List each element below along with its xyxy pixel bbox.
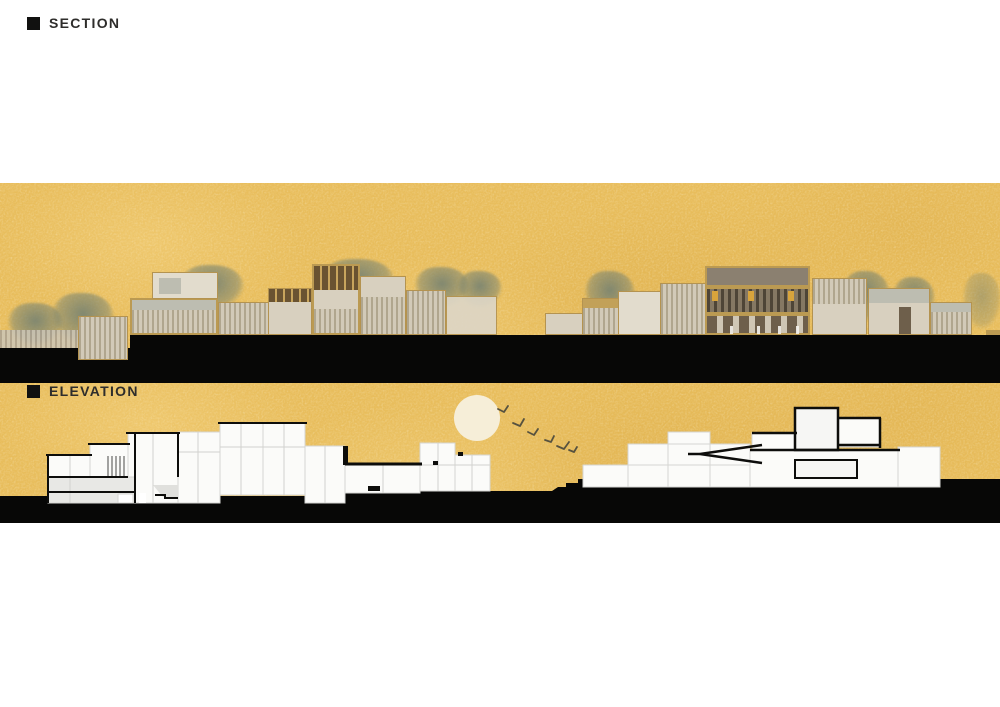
slat-band <box>361 297 405 334</box>
elevation-label-text: ELEVATION <box>49 383 139 399</box>
elevation-block <box>812 278 867 335</box>
door-opening <box>899 307 911 334</box>
section-building-right <box>583 408 940 487</box>
person-silhouette <box>796 326 799 334</box>
birds-flock <box>498 406 577 452</box>
bird-icon <box>498 406 508 412</box>
facade-band <box>813 304 866 334</box>
bird-icon <box>545 436 554 442</box>
person-silhouette <box>778 326 781 334</box>
slat-band <box>132 310 216 333</box>
elevation-block <box>406 290 446 335</box>
elevation-block <box>660 283 708 335</box>
window-row <box>269 289 311 302</box>
facade-band <box>583 299 621 308</box>
slat-band <box>583 308 621 334</box>
slat-band <box>314 309 358 333</box>
slat-band <box>931 312 971 334</box>
elevation-block <box>152 272 218 299</box>
sun <box>454 395 500 441</box>
elevation-block <box>312 264 360 335</box>
bird-icon <box>557 442 569 449</box>
elevation-block <box>868 288 930 335</box>
bird-icon <box>528 429 538 435</box>
elevation-block <box>582 298 622 335</box>
elevation-block <box>268 288 312 335</box>
facade-accent <box>788 291 794 301</box>
black-square-icon <box>27 17 40 30</box>
elevation-panel: ELEVATION <box>0 183 1000 383</box>
elevation-block <box>446 296 497 335</box>
drawing-sheet: ELEVATION <box>0 0 1000 707</box>
facade-band <box>361 277 405 297</box>
glass-band <box>931 303 971 312</box>
slat-band <box>813 279 866 304</box>
glass-band <box>159 278 181 294</box>
elevation-block <box>705 266 810 287</box>
elevation-block <box>0 330 78 348</box>
glass-band <box>869 289 929 303</box>
elevation-label: ELEVATION <box>27 383 139 399</box>
black-square-icon <box>27 385 40 398</box>
elevation-ground <box>0 335 1000 383</box>
person-silhouette <box>757 326 760 334</box>
window-row <box>314 266 358 290</box>
elevation-block <box>78 316 128 360</box>
person-silhouette <box>730 326 733 334</box>
elevation-block <box>360 276 406 335</box>
elevation-block <box>986 330 1000 335</box>
section-building-left <box>46 423 490 503</box>
facade-band <box>314 290 358 309</box>
facade-accent <box>748 291 754 301</box>
bird-icon <box>513 419 524 426</box>
elevation-block <box>545 313 587 335</box>
facade-accent <box>712 291 718 301</box>
section-label: SECTION <box>27 15 120 31</box>
elevation-block <box>130 298 218 335</box>
section-label-text: SECTION <box>49 15 120 31</box>
section-panel: SECTION <box>0 383 1000 523</box>
elevation-block <box>705 287 810 314</box>
glass-band <box>132 300 216 310</box>
elevation-block <box>618 291 662 335</box>
section-drawing <box>0 383 1000 523</box>
bird-icon <box>569 447 577 452</box>
facade-band <box>269 302 311 334</box>
elevation-block <box>930 302 972 335</box>
